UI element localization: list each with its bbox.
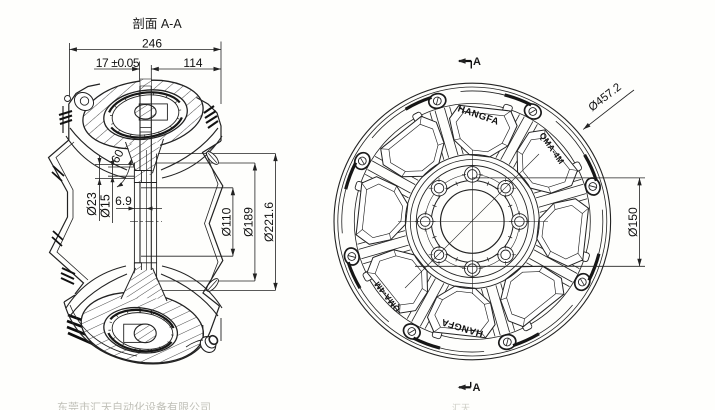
svg-text:6.9: 6.9 <box>115 194 132 208</box>
svg-text:剖面 A-A: 剖面 A-A <box>132 17 182 31</box>
svg-text:246: 246 <box>142 37 162 51</box>
svg-text:汇天: 汇天 <box>452 403 470 410</box>
svg-text:Ø221.6: Ø221.6 <box>262 202 276 242</box>
svg-text:Ø15: Ø15 <box>99 194 113 218</box>
svg-text:Ø150: Ø150 <box>626 207 640 237</box>
svg-text:114: 114 <box>183 56 202 70</box>
svg-text:A: A <box>473 382 481 394</box>
svg-text:A: A <box>473 56 481 68</box>
svg-text:Ø110: Ø110 <box>219 207 233 236</box>
svg-text:Ø23: Ø23 <box>85 192 99 216</box>
svg-text:东莞市汇天自动化设备有限公司: 东莞市汇天自动化设备有限公司 <box>57 400 211 410</box>
svg-text:17 ±0.05: 17 ±0.05 <box>96 56 140 70</box>
svg-text:Ø189: Ø189 <box>241 207 255 237</box>
